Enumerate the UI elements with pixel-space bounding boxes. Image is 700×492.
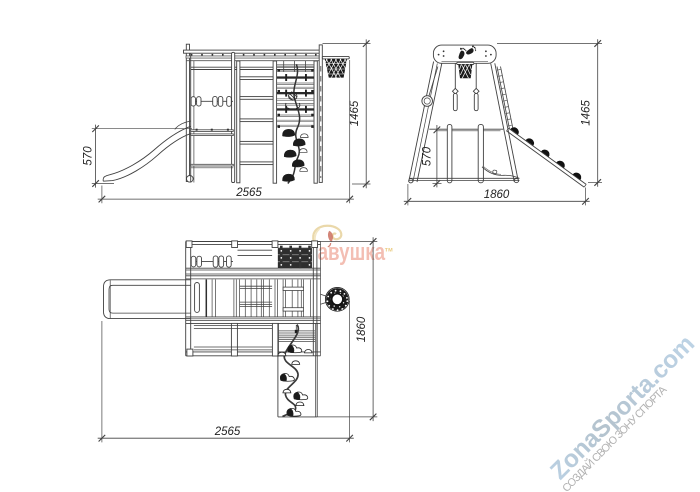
svg-text:570: 570 (422, 146, 434, 166)
svg-text:570: 570 (83, 146, 95, 166)
svg-text:2565: 2565 (214, 426, 241, 438)
svg-text:1860: 1860 (356, 316, 368, 342)
svg-text:1465: 1465 (581, 100, 593, 126)
svg-text:авушка: авушка (318, 239, 386, 266)
svg-text:1465: 1465 (349, 100, 361, 126)
svg-text:1860: 1860 (484, 189, 510, 201)
svg-text:тм: тм (385, 247, 393, 254)
svg-text:2565: 2565 (235, 187, 262, 199)
